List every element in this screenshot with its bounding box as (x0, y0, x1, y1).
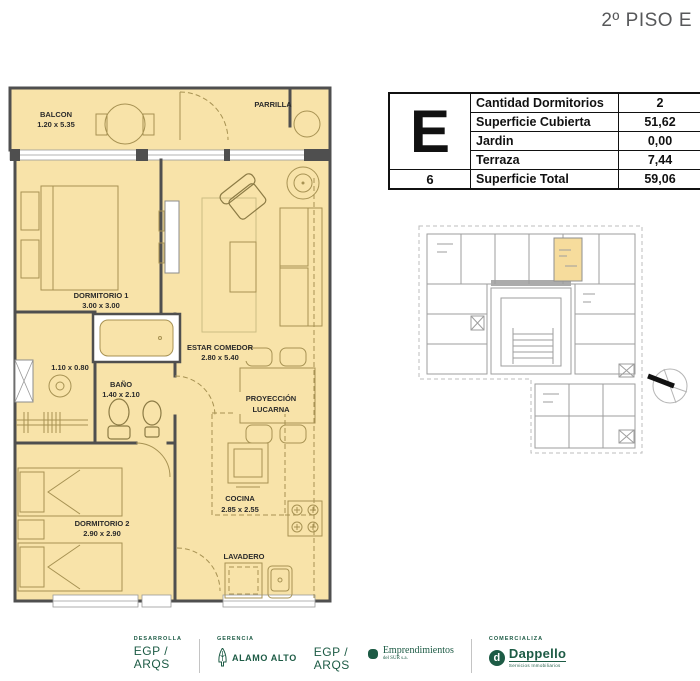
management-brand: ALAMO ALTO (232, 653, 297, 663)
floor-plan: BALCON 1.20 x 5.35 PARRILLA DORMITORIO 1… (8, 80, 343, 621)
footer-divider (471, 639, 472, 673)
dormitorio1-label: DORMITORIO 1 (74, 291, 129, 300)
developer-line2: ARQS (134, 658, 182, 671)
emprendimientos-icon (367, 648, 379, 660)
page-title: 2º PISO E (601, 10, 692, 32)
emprendimientos-line2: del SUR s.a. (383, 656, 454, 662)
marketer-tagline: Servicios Inmobiliarios (509, 663, 566, 668)
cocina-label: COCINA (225, 494, 255, 503)
architects-logo: EGP / ARQS (314, 636, 350, 672)
developer-caption: DESARROLLA (134, 636, 182, 642)
poplar-tree-icon (217, 648, 228, 667)
table-value: 2 (619, 93, 700, 113)
unit-letter: E (389, 93, 471, 170)
balcony-dims: 1.20 x 5.35 (37, 120, 75, 129)
marketer-caption: COMERCIALIZA (489, 636, 566, 642)
balcony-floor (10, 88, 330, 150)
table-label: Superficie Cubierta (471, 113, 619, 132)
table-value: 0,00 (619, 132, 700, 151)
footer-divider (199, 639, 200, 673)
emprendimientos-line1: Emprendimientos (383, 646, 454, 656)
parrilla-label: PARRILLA (254, 100, 292, 109)
dormitorio1-dims: 3.00 x 3.00 (82, 301, 120, 310)
bano-label: BAÑO (110, 380, 132, 389)
dormitorio2-label: DORMITORIO 2 (75, 519, 130, 528)
unit-number: 6 (389, 170, 471, 190)
key-plan (413, 216, 658, 461)
unit-info-table: E Cantidad Dormitorios 2 Superficie Cubi… (388, 92, 700, 190)
management-logo: GERENCIA ALAMO ALTO (217, 636, 297, 667)
north-compass-icon (640, 352, 696, 412)
balcony-label: BALCON (40, 110, 72, 119)
bano-dims: 1.40 x 2.10 (102, 390, 140, 399)
table-label: Terraza (471, 151, 619, 170)
estar-dims: 2.80 x 5.40 (201, 353, 239, 362)
footer-logos: DESARROLLA EGP / ARQS GERENCIA ALAMO ALT… (0, 636, 700, 673)
management-caption: GERENCIA (217, 636, 297, 642)
highlighted-unit (554, 238, 582, 281)
table-label: Cantidad Dormitorios (471, 93, 619, 113)
shaft (15, 360, 33, 402)
floor-plan-sheet: 2º PISO E E Cantidad Dormitorios 2 Super… (0, 0, 700, 681)
proyeccion-label-2: LUCARNA (252, 405, 290, 414)
dormitorio2-dims: 2.90 x 2.90 (83, 529, 121, 538)
table-value: 51,62 (619, 113, 700, 132)
window-band (10, 149, 330, 161)
architects-line2: ARQS (314, 659, 350, 672)
marketer-brand: Dappello (509, 647, 566, 662)
table-label: Superficie Total (471, 170, 619, 190)
estar-label: ESTAR COMEDOR (187, 343, 254, 352)
bathtub (93, 314, 180, 362)
table-value: 7,44 (619, 151, 700, 170)
dappello-icon: d (489, 650, 505, 666)
vanity-dims-label: 1.10 x 0.80 (51, 363, 89, 372)
table-label: Jardin (471, 132, 619, 151)
emprendimientos-logo: Emprendimientos del SUR s.a. (367, 636, 454, 662)
table-value: 59,06 (619, 170, 700, 190)
marketer-logo: COMERCIALIZA d Dappello Servicios Inmobi… (489, 636, 566, 668)
cocina-dims: 2.85 x 2.55 (221, 505, 259, 514)
proyeccion-label-1: PROYECCIÓN (246, 394, 296, 403)
developer-logo: DESARROLLA EGP / ARQS (134, 636, 182, 671)
lavadero-label: LAVADERO (224, 552, 265, 561)
